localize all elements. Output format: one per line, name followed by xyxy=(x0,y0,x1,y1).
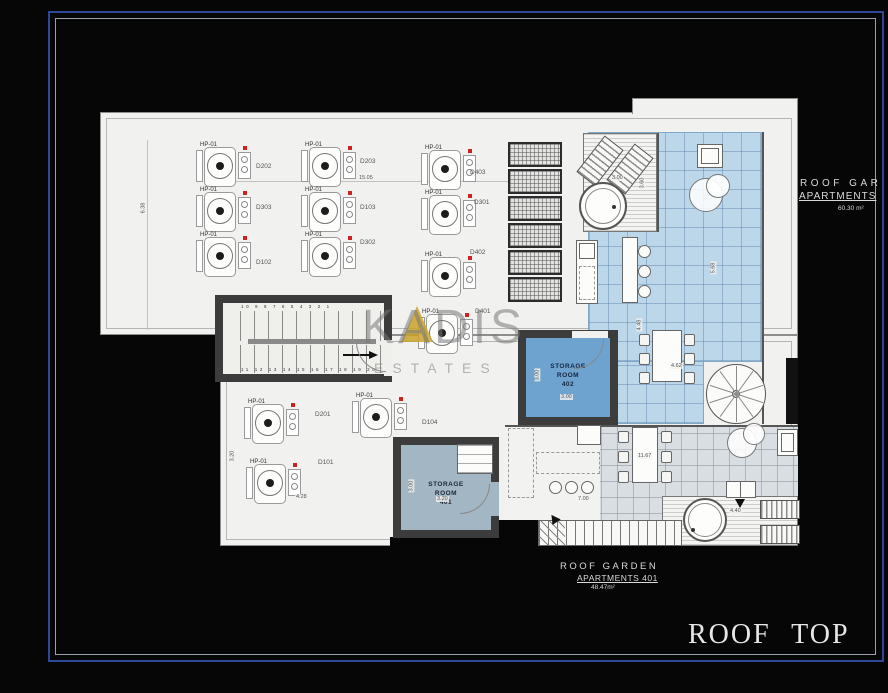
door-opening xyxy=(491,482,499,516)
sun-lounger xyxy=(760,525,800,544)
solar-panel xyxy=(508,250,562,275)
chair xyxy=(639,372,650,384)
dimension-line xyxy=(147,140,148,330)
solar-panel xyxy=(508,142,562,167)
roof-garden-402-title: ROOF GAR xyxy=(800,178,881,189)
bar-stool xyxy=(565,481,578,494)
void xyxy=(498,520,538,546)
spiral-staircase xyxy=(706,364,766,424)
kitchen-island xyxy=(622,237,638,303)
planter-box-inner xyxy=(781,433,794,452)
entry-steps xyxy=(726,481,756,498)
void xyxy=(390,537,500,546)
kitchen-sink xyxy=(579,243,595,259)
sun-lounger xyxy=(760,500,800,519)
chair xyxy=(684,372,695,384)
chair xyxy=(639,353,650,365)
bar-stool xyxy=(638,285,651,298)
potted-plant xyxy=(706,174,730,198)
dining-table xyxy=(632,427,658,483)
sheet-title: ROOF TOP xyxy=(688,619,850,651)
dining-table xyxy=(652,330,682,382)
door-opening xyxy=(572,331,608,338)
spiral-stair-spoke xyxy=(736,394,737,422)
solar-panel xyxy=(508,196,562,221)
chair xyxy=(661,451,672,463)
roof-garden-402-area: 60.30 m² xyxy=(838,205,864,212)
counter-dashed xyxy=(536,452,600,474)
bar-stool xyxy=(581,481,594,494)
bar-stool xyxy=(549,481,562,494)
watermark-brand: KADIS xyxy=(362,300,526,355)
solar-panel xyxy=(508,277,562,302)
potted-plant xyxy=(743,423,765,445)
spiral-stair-spoke xyxy=(736,366,737,394)
counter-dashed xyxy=(579,266,595,300)
chair xyxy=(684,334,695,346)
chair xyxy=(661,471,672,483)
chair xyxy=(618,471,629,483)
chair xyxy=(661,431,672,443)
jacuzzi-jet xyxy=(612,205,616,209)
planter-box-inner xyxy=(701,148,719,164)
closet xyxy=(457,444,493,474)
roof-garden-401-subtitle: APARTMENTS 401 xyxy=(577,573,658,583)
plan-area-top-step xyxy=(632,98,798,114)
storage-room-402-label: STORAGEROOM402 xyxy=(526,363,610,389)
chair xyxy=(684,353,695,365)
chair xyxy=(618,451,629,463)
dimension-line xyxy=(205,181,557,182)
direction-arrow xyxy=(735,499,745,508)
entry-steps-divider xyxy=(740,481,741,498)
watermark-sub: ESTATES xyxy=(374,360,499,376)
roof-garden-402-subtitle: APARTMENTS xyxy=(799,191,876,202)
solar-panel xyxy=(508,223,562,248)
bar-stool xyxy=(638,245,651,258)
floor-plan-sheet: 10 9 8 7 6 5 4 3 2 1 11 12 13 14 15 16 1… xyxy=(0,0,888,693)
stair-step-numbers: 10 9 8 7 6 5 4 3 2 1 xyxy=(241,304,332,309)
solar-panel-array xyxy=(508,142,562,304)
bbq-counter xyxy=(577,425,601,445)
roof-garden-401-title: ROOF GARDEN xyxy=(560,561,658,572)
roof-garden-401-area: 48.47m² xyxy=(591,584,615,591)
stair-step-numbers: 11 12 13 14 15 16 17 18 19 20 xyxy=(241,367,377,372)
solar-panel xyxy=(508,169,562,194)
deck-wall xyxy=(657,133,659,232)
bar-stool xyxy=(638,265,651,278)
wall-segment xyxy=(786,358,798,424)
jacuzzi-jet xyxy=(691,528,695,532)
chair xyxy=(639,334,650,346)
counter-dashed xyxy=(508,428,534,498)
chair xyxy=(618,431,629,443)
